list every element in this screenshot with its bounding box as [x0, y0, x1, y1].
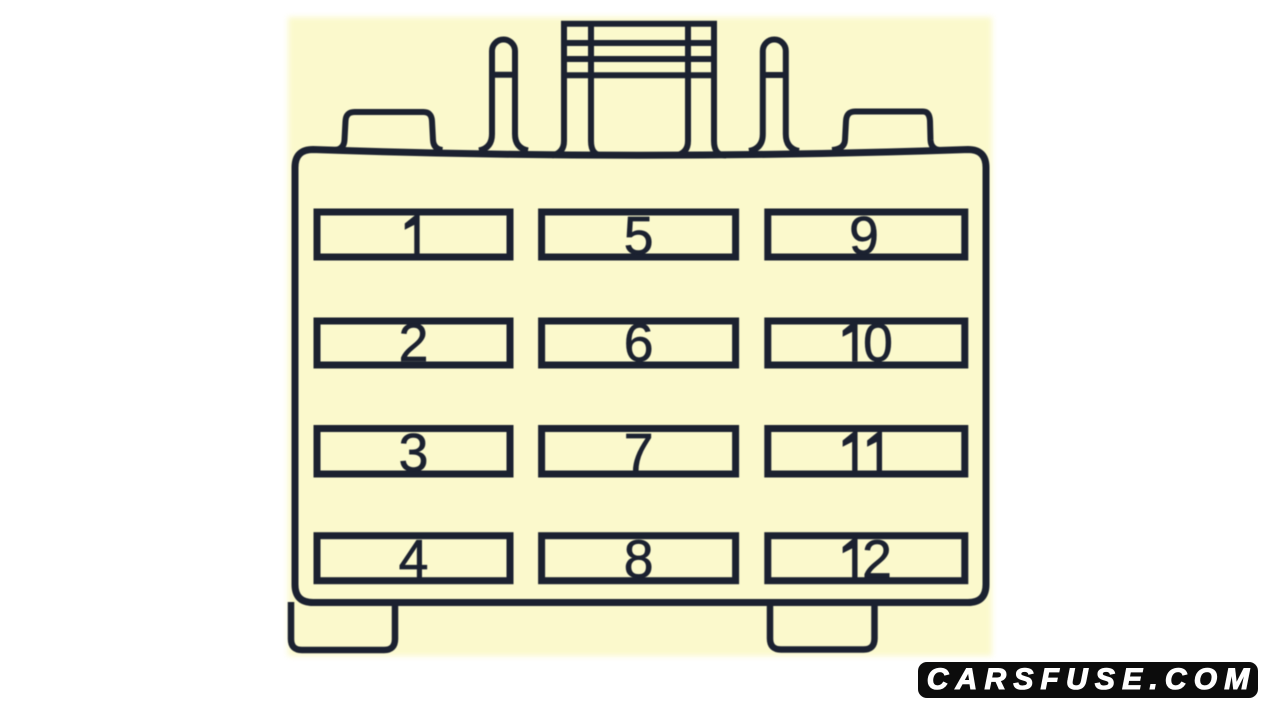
- svg-text:4: 4: [399, 531, 429, 590]
- svg-text:3: 3: [399, 424, 429, 483]
- svg-text:5: 5: [624, 207, 654, 266]
- svg-text:9: 9: [849, 207, 879, 266]
- svg-text:0: 0: [863, 314, 893, 373]
- svg-text:8: 8: [624, 531, 654, 590]
- svg-text:2: 2: [862, 531, 892, 590]
- svg-text:7: 7: [624, 424, 654, 483]
- svg-text:6: 6: [624, 314, 654, 373]
- svg-text:2: 2: [399, 314, 429, 373]
